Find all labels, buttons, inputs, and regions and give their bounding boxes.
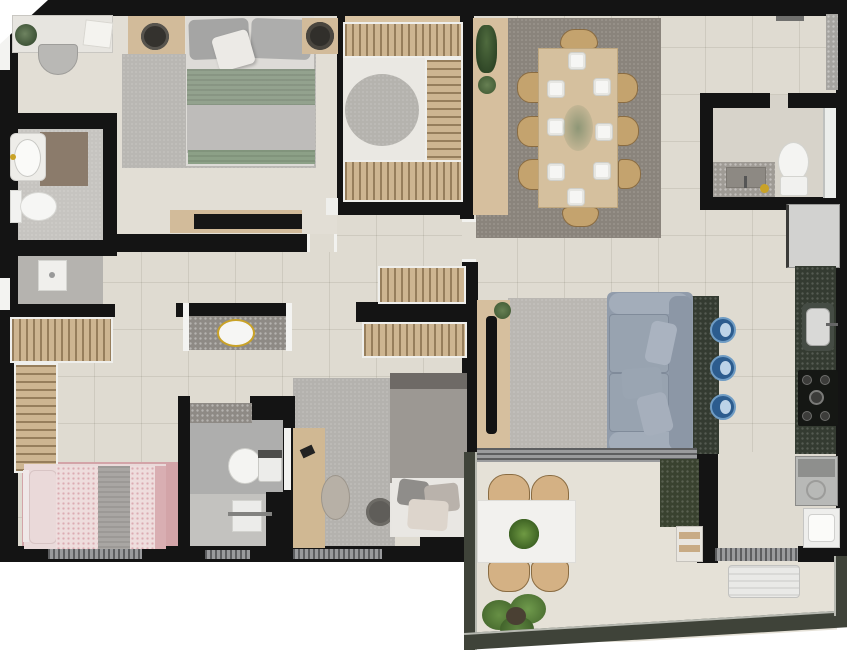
wall-bathroom2-west — [178, 396, 190, 548]
bathroom1-rug — [40, 132, 88, 186]
wall-bathroom1-east — [103, 113, 117, 252]
plate-2 — [547, 80, 565, 98]
wall-top — [0, 0, 847, 16]
open-shelf-bedroom3 — [362, 322, 467, 358]
wall-bathroom3-west — [700, 93, 713, 210]
toilet1-bowl — [20, 192, 57, 221]
kitchen-faucet-icon — [826, 323, 838, 326]
round-tray — [141, 23, 169, 50]
wardrobe-vertical — [14, 363, 58, 473]
burner-4 — [820, 411, 830, 421]
plate-3 — [593, 78, 611, 96]
burner-center — [809, 390, 824, 405]
centerpiece-plant-icon — [563, 105, 593, 151]
tv-living — [486, 316, 497, 434]
wall-shower-south — [0, 304, 115, 317]
washer-drum-icon — [806, 480, 826, 500]
door-bedroom1 — [307, 234, 337, 252]
sideboard-plant-tall-icon — [476, 25, 497, 73]
chair-bedroom3 — [321, 475, 350, 520]
window-bathroom2 — [205, 550, 250, 559]
kitchen-sink — [806, 308, 830, 346]
closet-rack-right — [425, 58, 463, 162]
entry-ledge — [826, 14, 838, 90]
fridge — [786, 204, 840, 268]
toilet2-lid-band — [258, 450, 282, 458]
wall-bathroom1-north — [10, 113, 103, 129]
shower-drain-icon — [49, 272, 55, 278]
bar-stool-3-highlight — [720, 400, 731, 414]
wall-bathroom3-north-a — [713, 93, 770, 108]
wall-bedroom1-south — [115, 234, 307, 252]
bed2-gray-runner — [98, 466, 130, 549]
drawer-1 — [679, 532, 700, 539]
towel-bar-icon — [228, 512, 272, 516]
door-bathroom3 — [770, 95, 788, 108]
burner-2 — [820, 375, 830, 385]
laundry-tub-basin — [808, 514, 835, 542]
washer-lid — [798, 459, 835, 477]
floor-plan — [0, 0, 847, 658]
bar-stool-1-highlight — [720, 323, 731, 337]
bathroom1-gold-faucet-icon — [10, 154, 16, 160]
wall-vanity — [176, 303, 286, 317]
window-bedroom3 — [293, 549, 382, 559]
window-bedroom2 — [48, 549, 142, 559]
bed2-duvet-left — [56, 466, 98, 549]
door-closet — [326, 198, 338, 215]
bed2-pillows — [29, 470, 57, 544]
wardrobe-horizontal — [10, 317, 113, 363]
window-shower — [0, 278, 10, 310]
toilet2-bowl — [228, 448, 262, 484]
plate-7 — [593, 162, 611, 180]
bathroom3-faucet-icon — [744, 176, 747, 188]
door-hall-dining — [462, 219, 476, 262]
potted-plant-pot — [506, 607, 526, 625]
wall-bathroom2-corner — [266, 492, 295, 554]
entry-door-leaf — [776, 16, 804, 21]
bathroom1-sink — [14, 139, 41, 177]
wall-mid-shelf — [356, 302, 473, 322]
bed2-pink-fold — [155, 466, 166, 549]
bathroom2-door-leaf — [284, 428, 291, 490]
bathroom2-counter — [190, 403, 252, 423]
shower-mat — [232, 500, 262, 532]
console-plant-icon — [494, 302, 511, 319]
balcony-chair-3 — [488, 561, 530, 592]
bed1-gray-duvet — [187, 105, 315, 153]
wall-service-south — [798, 546, 836, 562]
hall-vanity-sink — [217, 319, 255, 347]
plate-5 — [595, 123, 613, 141]
ac-condenser-unit — [728, 565, 800, 598]
bed2-duvet-right — [130, 466, 156, 549]
sideboard-plant-small-icon — [478, 76, 496, 94]
bar-stool-2-highlight — [720, 361, 731, 375]
open-shelf-hall — [378, 266, 466, 304]
balcony-table-plant-icon — [509, 519, 539, 549]
wall-bathroom3-north-b — [788, 93, 838, 108]
plate-1 — [568, 52, 586, 70]
balcony-railing-right — [834, 556, 847, 616]
tv-bedroom1 — [194, 214, 302, 229]
closet-rack-bottom — [343, 160, 463, 202]
desk-plant-icon — [15, 24, 37, 46]
outside-mask-left — [0, 562, 462, 658]
closet-rack-top — [343, 22, 463, 58]
burner-1 — [802, 375, 812, 385]
gold-accessory-icon — [760, 184, 769, 193]
bed1-green-fold — [188, 150, 315, 164]
bed3-blanket — [390, 389, 467, 483]
hat-box — [306, 22, 334, 50]
closet-round-rug — [345, 74, 419, 146]
bed1-green-blanket — [187, 69, 315, 107]
window-service — [715, 548, 798, 561]
desk-papers — [83, 19, 114, 48]
toilet3-tank — [780, 176, 808, 196]
shower-glass-bathroom3 — [823, 108, 836, 198]
vanity-post-right — [286, 303, 292, 351]
vanity-post-left — [183, 303, 189, 351]
dining-chair-top — [560, 29, 598, 49]
balcony-railing-left — [464, 452, 477, 650]
grill-counter — [660, 459, 699, 527]
bed3-pillow-3 — [407, 499, 449, 532]
wall-bathroom1-south — [0, 240, 117, 256]
plate-8 — [567, 188, 585, 206]
drawer-2 — [679, 545, 700, 552]
burner-3 — [802, 411, 812, 421]
plate-6 — [547, 163, 565, 181]
